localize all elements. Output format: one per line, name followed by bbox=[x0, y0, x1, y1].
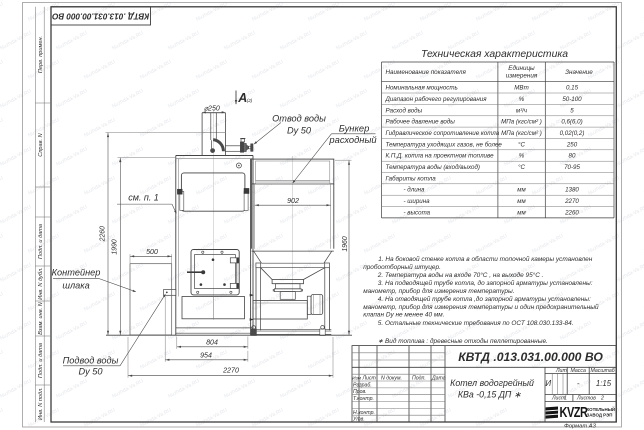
svg-text:Подвод воды: Подвод воды bbox=[63, 355, 119, 365]
svg-text:2270: 2270 bbox=[564, 198, 579, 205]
svg-text:К.П.Д. котла на проектном топл: К.П.Д. котла на проектном топливе bbox=[386, 153, 495, 160]
svg-text:Диапазон рабочего регулировани: Диапазон рабочего регулирования bbox=[385, 96, 488, 103]
svg-text:804: 804 bbox=[206, 339, 218, 347]
svg-text:манометр, прибор для измерения: манометр, прибор для измерения температу… bbox=[363, 303, 599, 311]
svg-text:Дата: Дата bbox=[431, 376, 446, 382]
svg-text:1960: 1960 bbox=[342, 236, 349, 251]
svg-text:Листов: Листов bbox=[576, 396, 596, 402]
svg-text:измерения: измерения bbox=[506, 73, 538, 80]
svg-text:°С: °С bbox=[518, 141, 525, 148]
svg-text:Перв. примен.: Перв. примен. bbox=[38, 36, 44, 73]
svg-text:пробоотборный штуцер.: пробоотборный штуцер. bbox=[363, 263, 441, 271]
svg-text:мм: мм bbox=[517, 209, 526, 216]
svg-text:Температура уходящих газов, не: Температура уходящих газов, не более bbox=[386, 141, 503, 148]
svg-text:250: 250 bbox=[566, 141, 578, 148]
svg-text:(2): (2) bbox=[247, 98, 253, 103]
svg-text:МВт: МВт bbox=[514, 85, 528, 92]
svg-text:МПа (кгс/см² ): МПа (кгс/см² ) bbox=[501, 119, 542, 126]
svg-text:Разраб.: Разраб. bbox=[353, 382, 372, 388]
svg-text:1: 1 bbox=[564, 396, 567, 402]
svg-text:м³/ч: м³/ч bbox=[516, 107, 528, 114]
svg-text:КВТД .013.031.00.000 ВО: КВТД .013.031.00.000 ВО bbox=[458, 350, 603, 364]
svg-text:Расход воды: Расход воды bbox=[386, 107, 423, 114]
svg-text:клапан Dу не менее 40 мм.: клапан Dу не менее 40 мм. bbox=[363, 312, 444, 319]
svg-text:70-95: 70-95 bbox=[564, 164, 580, 171]
svg-text:Бункер: Бункер bbox=[339, 122, 370, 133]
svg-text:ЗАВОД РЭП: ЗАВОД РЭП bbox=[587, 413, 613, 418]
svg-text:- высота: - высота bbox=[404, 209, 431, 216]
svg-text:Инв. N подл.: Инв. N подл. bbox=[38, 387, 44, 420]
svg-text:Котел водогрейный: Котел водогрейный bbox=[450, 378, 534, 388]
svg-text:- ширина: - ширина bbox=[404, 198, 431, 205]
svg-text:КОТЕЛЬНЫЙ: КОТЕЛЬНЫЙ bbox=[587, 407, 616, 412]
svg-text:Лит.: Лит. bbox=[555, 368, 568, 374]
svg-text:Рабочее давление воды: Рабочее давление воды bbox=[386, 119, 456, 126]
svg-text:Единицы: Единицы bbox=[508, 64, 535, 72]
svg-text:Отвод воды: Отвод воды bbox=[272, 114, 326, 124]
svg-text:Техническая характеристика: Техническая характеристика bbox=[421, 49, 568, 60]
svg-text:расходный: расходный bbox=[328, 134, 377, 145]
svg-text:Лист: Лист bbox=[362, 376, 377, 382]
svg-text:И: И bbox=[545, 379, 551, 388]
svg-text:3. На подводящей трубе котла,: 3. На подводящей трубе котла, до запорно… bbox=[378, 279, 593, 287]
svg-text:%: % bbox=[519, 153, 525, 160]
svg-text:мм: мм bbox=[517, 187, 526, 194]
svg-text:Dy 50: Dy 50 bbox=[78, 367, 103, 377]
svg-text:2260: 2260 bbox=[564, 209, 579, 216]
svg-text:2270: 2270 bbox=[222, 366, 239, 374]
svg-text:Габариты котла: Габариты котла bbox=[386, 175, 437, 182]
svg-text:°С: °С bbox=[518, 164, 525, 171]
svg-text:Пров.: Пров. bbox=[353, 389, 367, 395]
svg-text:%: % bbox=[519, 96, 525, 103]
svg-text:Наименование показателя: Наименование показателя bbox=[386, 69, 467, 76]
svg-text:Масса: Масса bbox=[571, 368, 586, 374]
svg-text:КВа -0,15 ДП ∗: КВа -0,15 ДП ∗ bbox=[458, 389, 522, 399]
svg-text:5: 5 bbox=[570, 107, 574, 114]
svg-text:1. На боковой стенке котла в о: 1. На боковой стенке котла в области топ… bbox=[378, 255, 593, 263]
svg-text:Подп.: Подп. bbox=[412, 376, 426, 382]
svg-text:0,02(0,2): 0,02(0,2) bbox=[560, 130, 585, 137]
svg-text:N докум.: N докум. bbox=[381, 376, 402, 382]
svg-text:Подп. и дата: Подп. и дата bbox=[38, 224, 44, 259]
svg-text:954: 954 bbox=[200, 352, 212, 360]
svg-text:шлака: шлака bbox=[62, 280, 89, 290]
svg-text:902: 902 bbox=[287, 197, 299, 205]
svg-text:Справ. N: Справ. N bbox=[38, 132, 44, 156]
svg-text:МПа (кгс/см² ): МПа (кгс/см² ) bbox=[501, 130, 542, 137]
svg-text:⌀250: ⌀250 bbox=[204, 105, 220, 112]
svg-text:Изм: Изм bbox=[352, 376, 361, 381]
svg-text:Гидравлическое сопротивление к: Гидравлическое сопротивление котла bbox=[386, 130, 500, 137]
svg-text:1380: 1380 bbox=[565, 187, 579, 194]
svg-text:2: 2 bbox=[600, 396, 604, 402]
svg-text:Утв.: Утв. bbox=[353, 417, 365, 423]
svg-text:4. На отводящей трубе котла ,: 4. На отводящей трубе котла ,до запорной… bbox=[378, 295, 591, 303]
svg-text:мм: мм bbox=[517, 198, 526, 205]
svg-text:80: 80 bbox=[569, 153, 576, 160]
svg-text:500: 500 bbox=[146, 248, 158, 256]
svg-text:Масштаб: Масштаб bbox=[590, 368, 615, 374]
svg-text:Номинальная мощность: Номинальная мощность bbox=[386, 85, 458, 92]
svg-text:Формат А3: Формат А3 bbox=[564, 424, 596, 430]
svg-text:2260: 2260 bbox=[99, 226, 106, 242]
svg-text:КВТД .013.031.00.000 ВО: КВТД .013.031.00.000 ВО bbox=[51, 12, 149, 21]
svg-text:-: - bbox=[577, 379, 580, 388]
svg-text:50-100: 50-100 bbox=[562, 96, 582, 103]
svg-text:0,6(6,0): 0,6(6,0) bbox=[561, 119, 582, 126]
svg-text:Подп. и дата: Подп. и дата bbox=[38, 343, 44, 378]
svg-text:1:15: 1:15 bbox=[596, 379, 612, 388]
svg-text:см. п. 1: см. п. 1 bbox=[128, 192, 159, 202]
svg-text:Контейнер: Контейнер bbox=[52, 267, 101, 277]
svg-text:Н.контр.: Н.контр. bbox=[353, 410, 375, 416]
svg-text:1990: 1990 bbox=[112, 239, 119, 254]
svg-text:Инв. N дубл.: Инв. N дубл. bbox=[38, 267, 44, 299]
svg-text:Температура воды (вход/выход): Температура воды (вход/выход) bbox=[386, 164, 480, 171]
svg-text:Взам. инв. N: Взам. инв. N bbox=[38, 301, 44, 335]
svg-text:2. Температура воды на входе: 2. Температура воды на входе 70°С , на в… bbox=[377, 271, 544, 279]
svg-text:0,15: 0,15 bbox=[566, 85, 579, 92]
svg-text:Dy 50: Dy 50 bbox=[287, 126, 312, 136]
svg-text:5. Остальные технические треб: 5. Остальные технические требования по О… bbox=[378, 319, 574, 327]
svg-text:манометр, прибор для измерения: манометр, прибор для измерения температу… bbox=[363, 287, 514, 295]
svg-text:- длина: - длина bbox=[404, 187, 426, 194]
svg-text:Значение: Значение bbox=[565, 69, 593, 76]
svg-text:KVZR: KVZR bbox=[560, 403, 589, 420]
svg-text:∗ Вид топлива : древесные от: ∗ Вид топлива : древесные отходы пеллети… bbox=[378, 337, 548, 345]
svg-text:Т.контр.: Т.контр. bbox=[353, 396, 374, 402]
